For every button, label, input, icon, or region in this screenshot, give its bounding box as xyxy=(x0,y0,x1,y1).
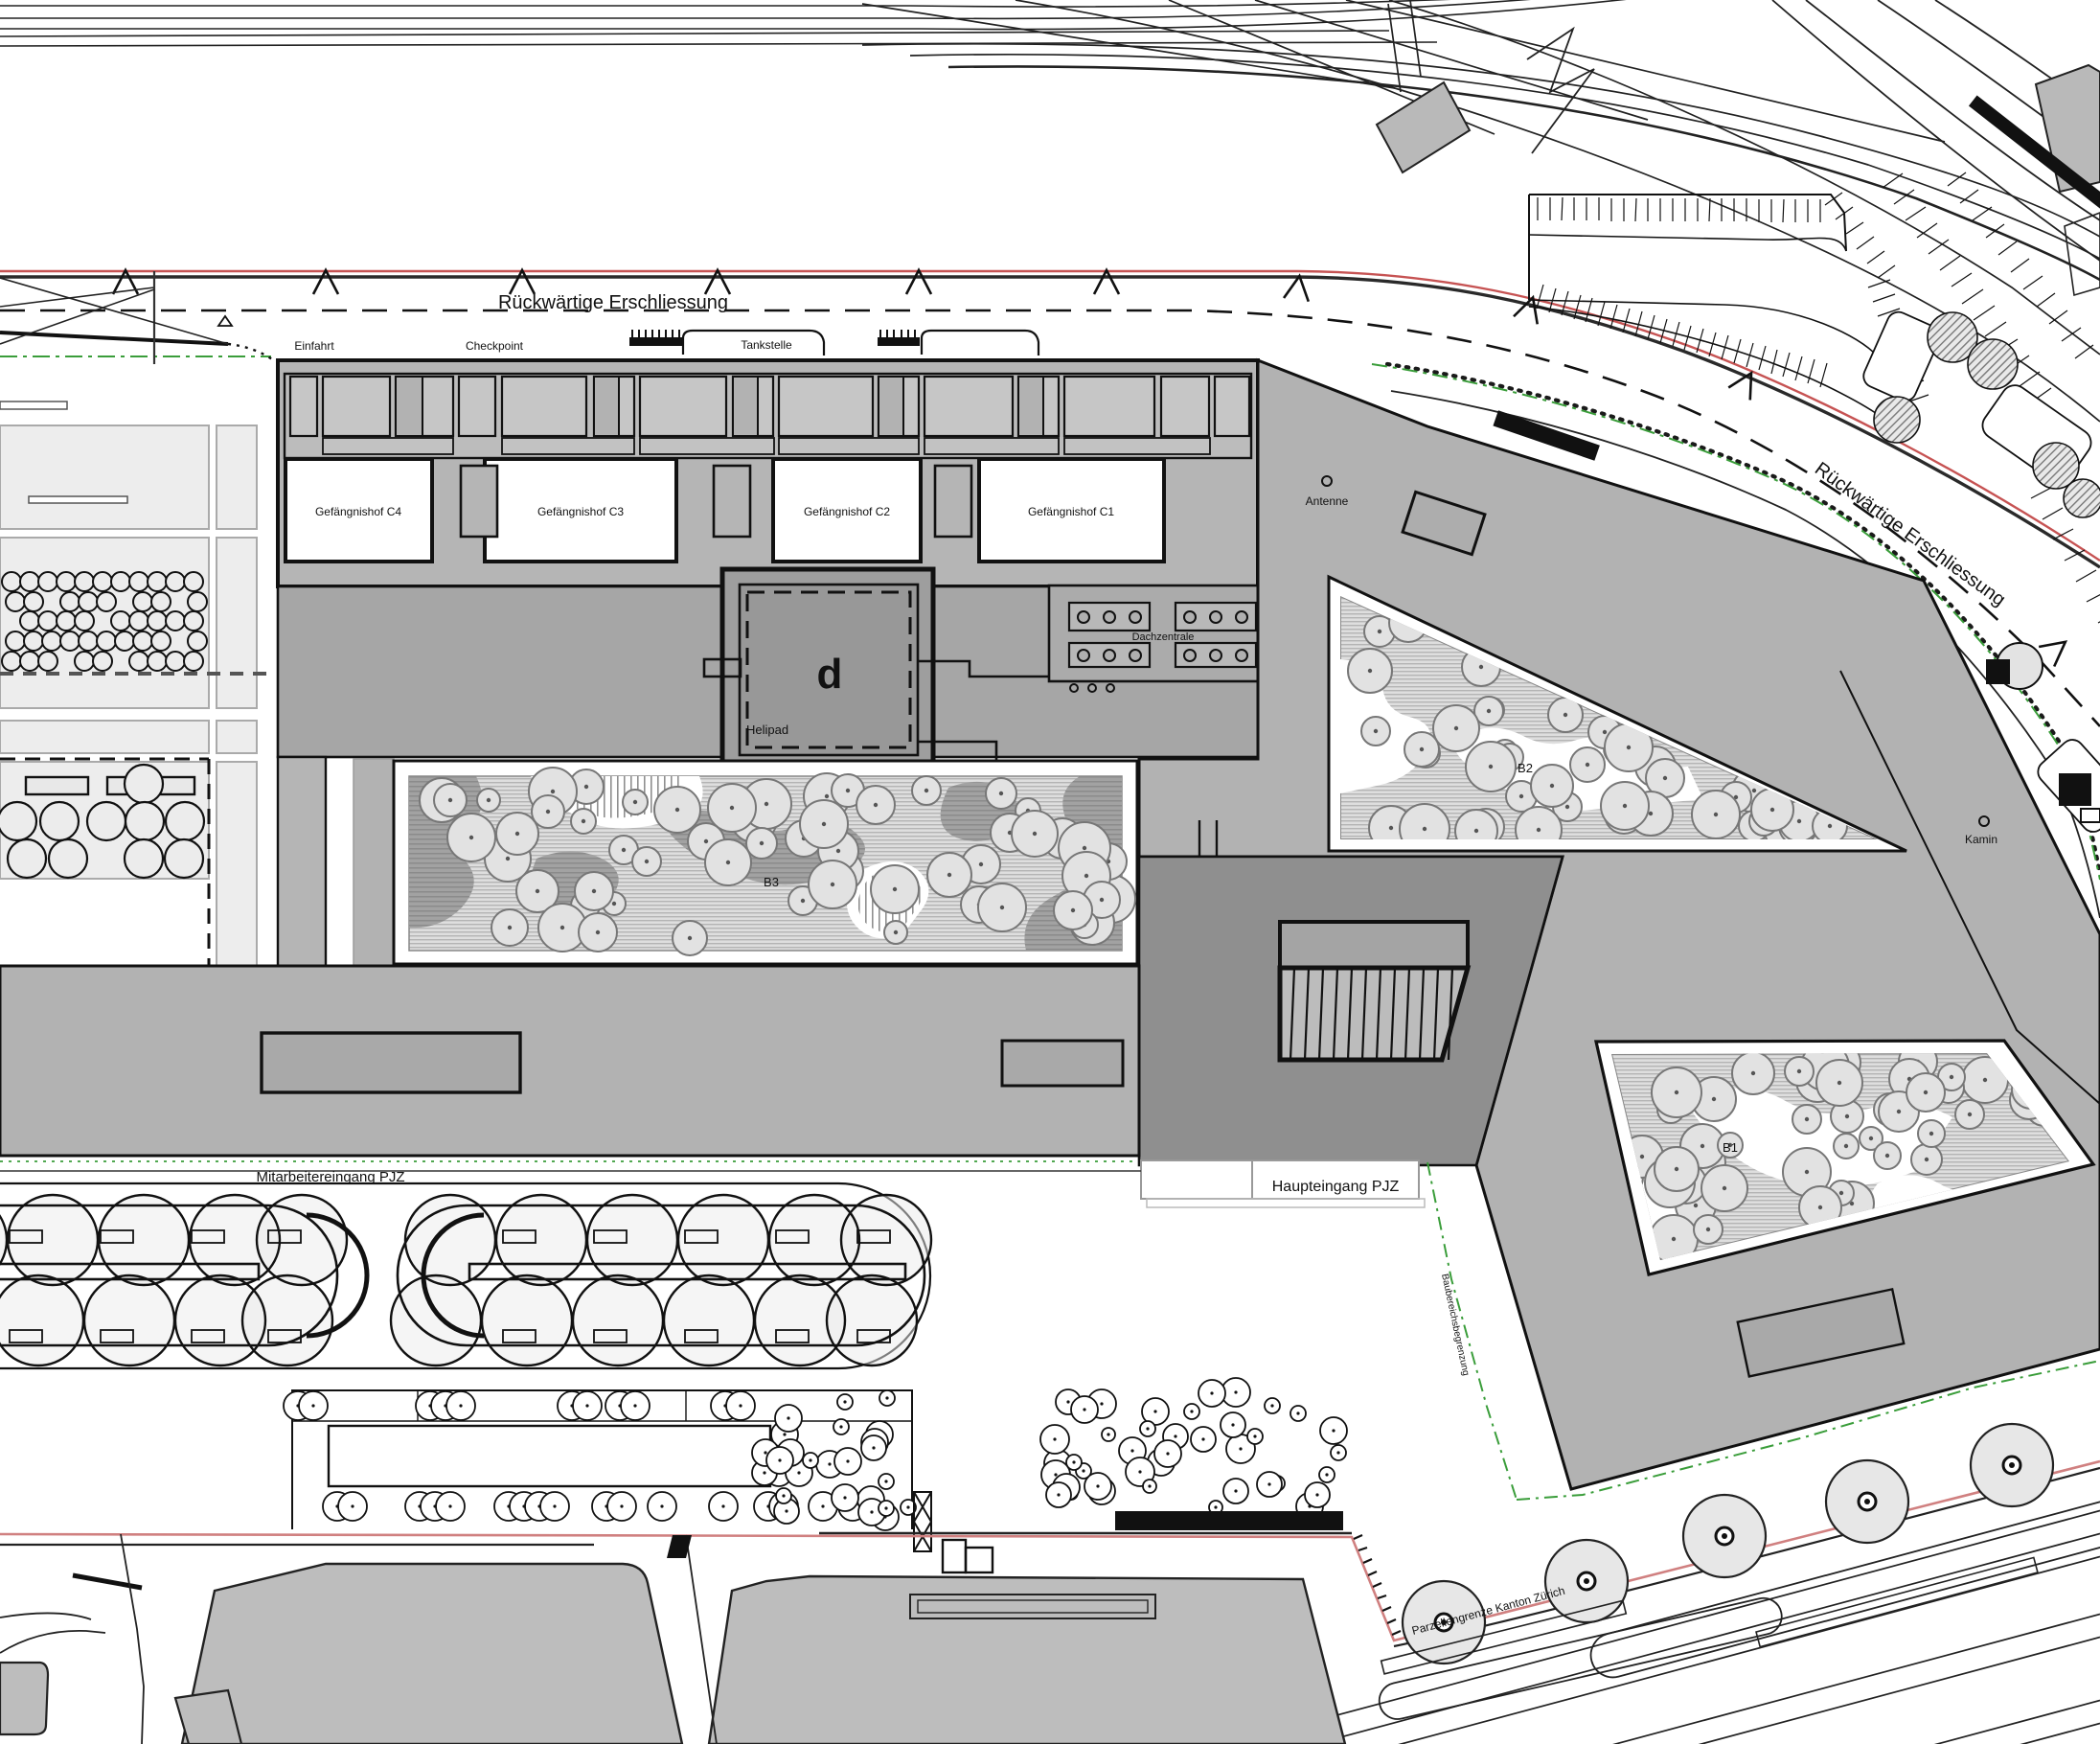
svg-text:Haupteingang PJZ: Haupteingang PJZ xyxy=(1272,1179,1400,1195)
svg-text:Kamin: Kamin xyxy=(1965,833,1997,846)
svg-text:Checkpoint: Checkpoint xyxy=(466,339,524,353)
svg-text:Gefängnishof C3: Gefängnishof C3 xyxy=(537,505,624,518)
svg-text:Antenne: Antenne xyxy=(1306,494,1349,508)
svg-text:B1: B1 xyxy=(1723,1140,1738,1155)
svg-text:d: d xyxy=(817,651,843,698)
svg-text:B2: B2 xyxy=(1518,761,1533,775)
svg-text:Dachzentrale: Dachzentrale xyxy=(1132,631,1195,643)
svg-text:Einfahrt: Einfahrt xyxy=(294,339,334,353)
svg-text:Rückwärtige Erschliessung: Rückwärtige Erschliessung xyxy=(498,292,728,313)
svg-text:Helipad: Helipad xyxy=(746,723,788,737)
svg-text:Gefängnishof C2: Gefängnishof C2 xyxy=(804,505,890,518)
svg-text:Gefängnishof C4: Gefängnishof C4 xyxy=(315,505,401,518)
svg-text:Tankstelle: Tankstelle xyxy=(741,338,792,352)
svg-text:B3: B3 xyxy=(764,875,779,889)
svg-text:Gefängnishof C1: Gefängnishof C1 xyxy=(1028,505,1114,518)
